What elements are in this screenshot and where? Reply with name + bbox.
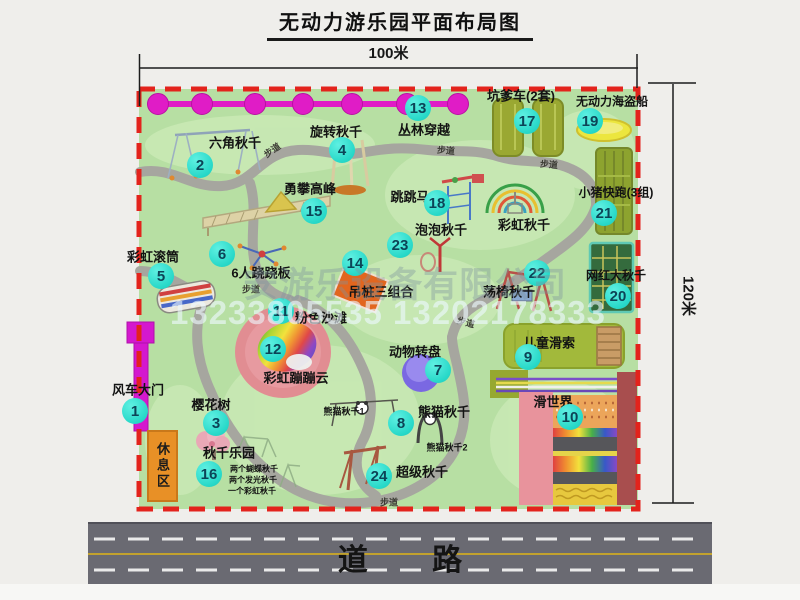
marker-9: 9 xyxy=(515,344,541,370)
map-label: 彩虹滚筒 xyxy=(127,247,179,266)
map-label: 风车大门 xyxy=(112,380,164,399)
map-label: 两个发光秋千 xyxy=(229,475,277,486)
map-label: 六角秋千 xyxy=(209,133,261,152)
map-label: 无动力海盗船 xyxy=(576,93,648,110)
map-label: 网红大秋千 xyxy=(586,267,646,284)
marker-14: 14 xyxy=(342,250,368,276)
marker-22: 22 xyxy=(524,260,550,286)
map-label: 步道 xyxy=(539,157,558,172)
marker-1: 1 xyxy=(122,398,148,424)
marker-6: 6 xyxy=(209,241,235,267)
map-label: 小猪快跑(3组) xyxy=(579,184,654,201)
map-label: 丛林穿越 xyxy=(398,120,450,139)
marker-21: 21 xyxy=(591,200,617,226)
marker-3: 3 xyxy=(203,410,229,436)
dimension-width-label: 100米 xyxy=(139,42,638,63)
map-label: 超级秋千 xyxy=(396,462,448,481)
map-label: 熊猫秋千1 xyxy=(323,405,364,418)
marker-7: 7 xyxy=(425,357,451,383)
marker-2: 2 xyxy=(187,152,213,178)
map-label: 熊猫秋千2 xyxy=(426,441,467,454)
marker-19: 19 xyxy=(577,108,603,134)
page-title: 无动力游乐园平面布局图 xyxy=(267,6,533,41)
map-label: 吊桩三组合 xyxy=(348,282,413,301)
map-label: 步道 xyxy=(242,283,260,296)
map-label: 粉色沙滩 xyxy=(295,308,347,327)
map-label: 秋千乐园 xyxy=(203,443,255,462)
screenshot: 无动力游乐园平面布局图 100米 120米 休息区 六角秋千旋转秋千丛林穿越坑爹… xyxy=(0,0,800,600)
map-label: 熊猫秋千 xyxy=(418,402,470,421)
rest-area: 休息区 xyxy=(147,430,178,502)
map-label: 彩虹蹦蹦云 xyxy=(263,368,328,387)
marker-17: 17 xyxy=(514,108,540,134)
map-label: 一个彩虹秋千 xyxy=(228,486,276,497)
marker-12: 12 xyxy=(260,336,286,362)
map-label: 荡椅秋千 xyxy=(483,282,535,301)
map-label: 坑爹车(2套) xyxy=(487,86,555,105)
marker-5: 5 xyxy=(148,263,174,289)
marker-10: 10 xyxy=(557,404,583,430)
marker-24: 24 xyxy=(366,463,392,489)
map-label: 彩虹秋千 xyxy=(498,215,550,234)
map-label: 泡泡秋千 xyxy=(415,220,467,239)
marker-8: 8 xyxy=(388,410,414,436)
dimension-height-label: 120米 xyxy=(679,276,700,316)
marker-18: 18 xyxy=(424,190,450,216)
map-label: 勇攀高峰 xyxy=(284,179,336,198)
marker-20: 20 xyxy=(605,283,631,309)
marker-11: 11 xyxy=(268,298,294,324)
road-label: 道 路 xyxy=(88,535,712,579)
marker-4: 4 xyxy=(329,137,355,163)
marker-23: 23 xyxy=(387,232,413,258)
page-bottom-strip xyxy=(0,584,800,600)
marker-13: 13 xyxy=(405,95,431,121)
map-label: 步道 xyxy=(436,143,455,158)
marker-15: 15 xyxy=(301,198,327,224)
map-label: 步道 xyxy=(380,496,398,509)
marker-16: 16 xyxy=(196,461,222,487)
map-label: 6人跷跷板 xyxy=(231,263,290,282)
map-label: 两个蝴蝶秋千 xyxy=(230,464,278,475)
title-bar: 无动力游乐园平面布局图 xyxy=(0,6,800,41)
